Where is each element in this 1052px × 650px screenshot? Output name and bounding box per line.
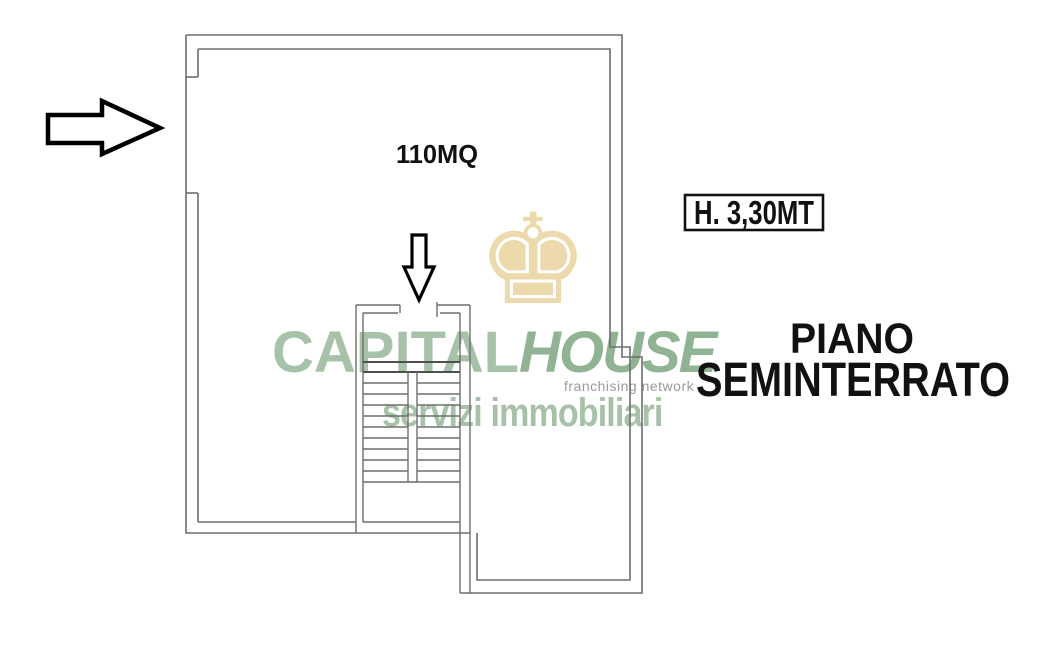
area-label: 110MQ — [396, 139, 478, 169]
ceiling-height-box: H. 3,30MT — [685, 194, 823, 231]
outer-walls — [186, 35, 642, 593]
staircase — [356, 302, 470, 593]
floor-plan-drawing: 110MQ H. 3,30MT PIANO SEMINTERRATO — [0, 0, 1052, 650]
down-arrow-icon — [404, 235, 434, 300]
stair-treads — [363, 383, 460, 482]
inner-walls — [186, 49, 630, 580]
floor-title: PIANO SEMINTERRATO — [696, 315, 1010, 407]
ceiling-height-label: H. 3,30MT — [694, 194, 814, 231]
floorplan-page: ♚ CAPITALHOUSE franchising network servi… — [0, 0, 1052, 650]
right-arrow-icon — [48, 101, 160, 154]
floor-title-line2: SEMINTERRATO — [696, 354, 1010, 407]
